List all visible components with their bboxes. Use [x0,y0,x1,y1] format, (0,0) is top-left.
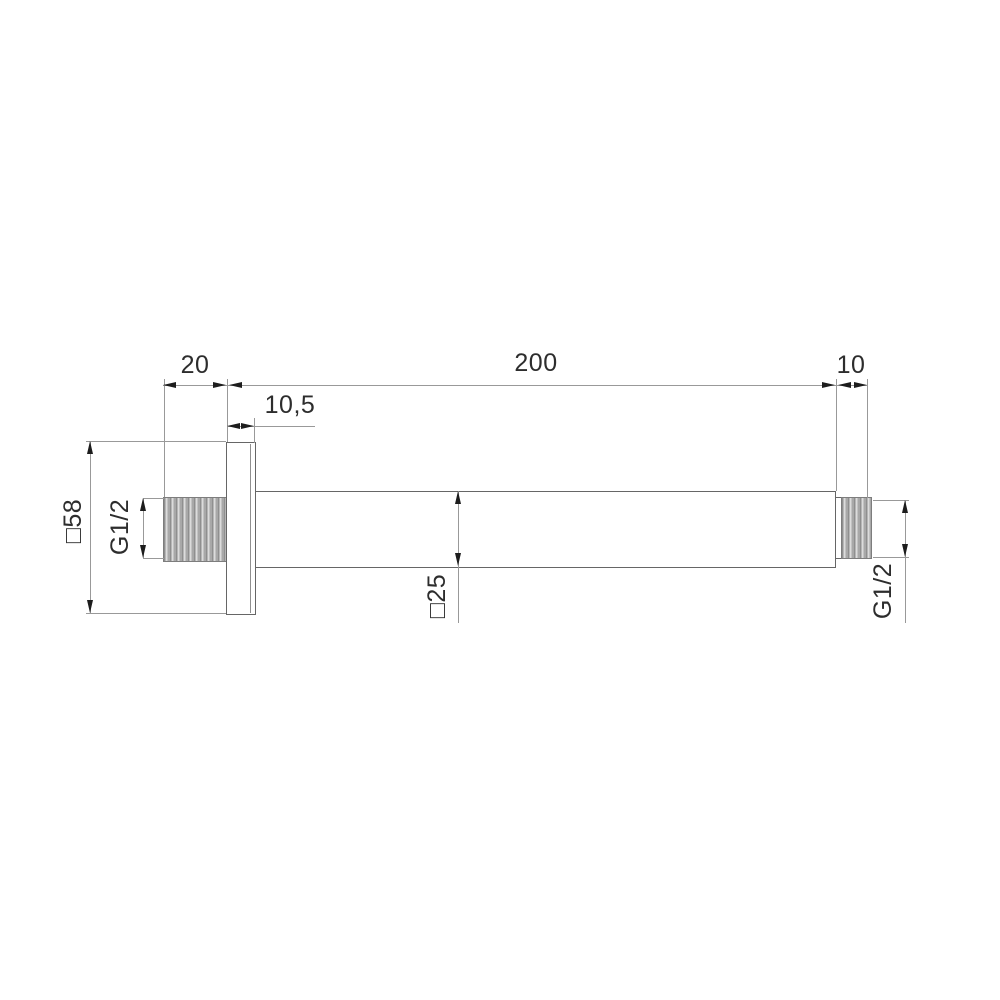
arrow-200-right [822,382,835,388]
dim-label-arm-length: 200 [486,350,586,376]
arrow-10-left [838,382,851,388]
extension-line-left-thread-start [164,379,165,497]
arrow-105-right [241,423,254,429]
flange-edge-line [250,444,251,613]
dim-label-left-thread-spec: G1/2 [107,499,133,555]
dim-label-tube-square: □25 [424,574,450,618]
dim-label-flange-thickness: 10,5 [252,392,328,418]
extension-line-flange-bottom [86,613,226,614]
dim-label-right-thread-spec: G1/2 [870,563,896,619]
arrow-200-left [229,382,242,388]
arrow-58-top [87,441,93,454]
extension-line-left-thread-bottom [143,558,164,559]
right-thread-section [841,497,872,559]
arrow-105-left [227,423,240,429]
arrow-25-bottom [455,553,461,566]
flange-size-dimension-line [90,441,91,613]
arrow-10-right [854,382,867,388]
dim-label-flange-square: □58 [60,499,86,543]
top-dimension-line [163,385,867,386]
arrow-20-right [213,382,226,388]
extension-line-flange-top [86,441,226,442]
arrow-58-bottom [87,600,93,613]
arrow-25-top [455,491,461,504]
dim-label-right-thread-length: 10 [821,352,881,378]
dim-label-left-thread-length: 20 [160,352,230,378]
arrow-g12-right-bottom [902,544,908,557]
arrow-g12-left-bottom [140,545,146,558]
extension-line-right-thread-bottom [873,557,909,558]
wall-flange [226,442,256,615]
arm-tube [255,491,836,568]
left-thread-section [163,497,227,562]
arrow-20-left [163,382,176,388]
right-thread-dimension-line [905,500,906,623]
extension-line-flange-face [227,379,228,442]
arrow-g12-right-top [902,500,908,513]
technical-drawing-canvas: 20 200 10 10,5 □58 G1/2 □25 G1/2 [0,0,1000,1000]
extension-line-right-thread-end [867,379,868,498]
extension-line-tube-end [836,379,837,491]
extension-line-flange-back [254,418,255,443]
arrow-g12-left-top [140,498,146,511]
extension-line-left-thread-top [143,498,164,499]
